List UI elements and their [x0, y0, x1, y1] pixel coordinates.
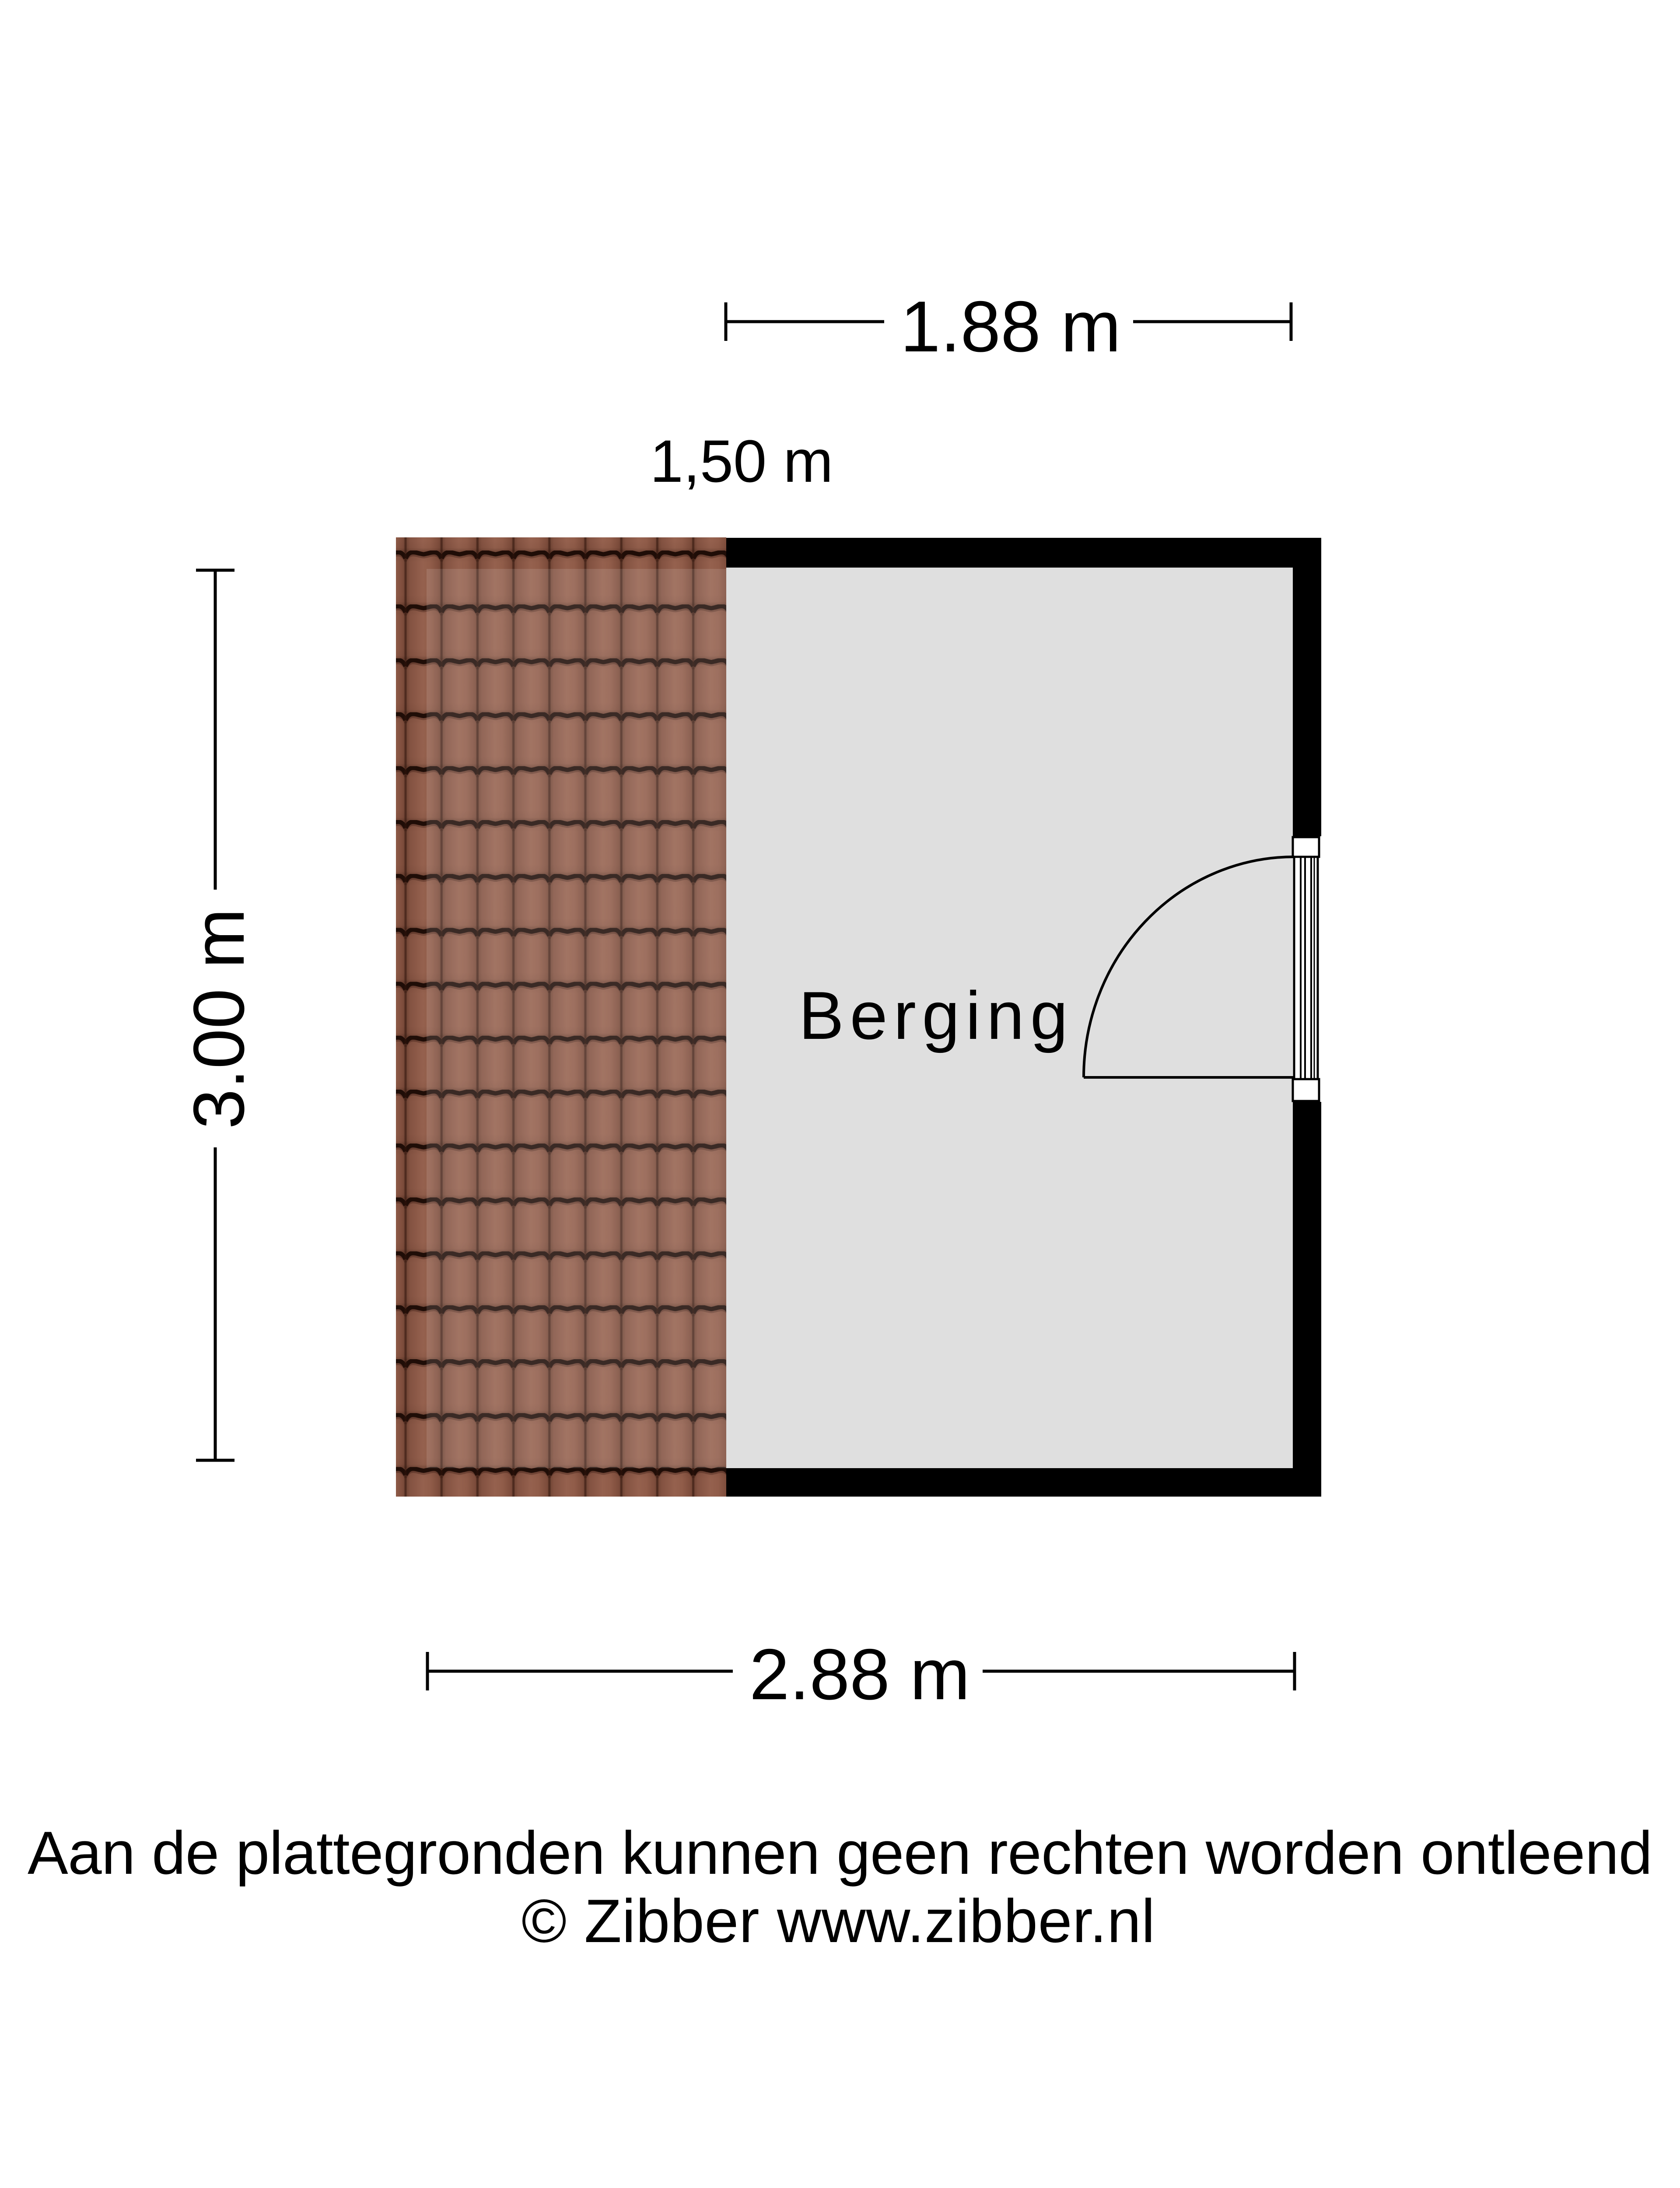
svg-text:2.88 m: 2.88 m	[749, 1634, 970, 1715]
svg-text:3.00 m: 3.00 m	[178, 908, 259, 1129]
svg-text:Berging: Berging	[799, 978, 1074, 1053]
svg-text:1.88 m: 1.88 m	[900, 286, 1121, 367]
svg-text:© Zibber www.zibber.nl: © Zibber www.zibber.nl	[521, 1886, 1155, 1955]
svg-text:1,50 m: 1,50 m	[650, 428, 833, 495]
svg-text:Aan de plattegronden kunnen ge: Aan de plattegronden kunnen geen rechten…	[28, 1819, 1652, 1887]
